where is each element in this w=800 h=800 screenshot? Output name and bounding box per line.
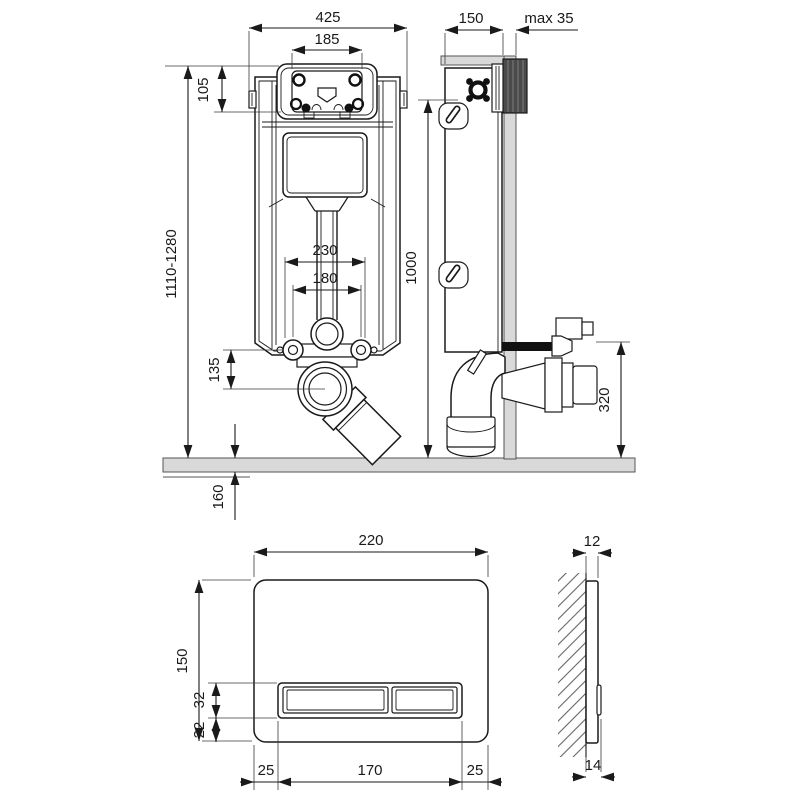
dim-bolt-spacing: 180 <box>312 270 337 287</box>
bolt-head <box>345 104 354 113</box>
drain-elbow <box>447 350 505 457</box>
dim-floor-depth: 160 <box>210 484 227 509</box>
dim-button-height: 32 <box>191 692 208 709</box>
technical-drawing-page: 425 185 105 1110-1280 230 180 135 160 15… <box>0 0 800 800</box>
plate-side-button-bump <box>597 685 601 715</box>
dim-plate-margin-right: 25 <box>467 762 484 779</box>
dim-outlet-drop: 135 <box>206 357 223 382</box>
frame-front-view <box>249 64 407 467</box>
dim-plate-height: 150 <box>174 648 191 673</box>
dim-plate-thickness: 12 <box>584 533 601 550</box>
flush-plate-side-view <box>558 573 601 757</box>
dim-button-span: 170 <box>357 762 382 779</box>
frame-side-view <box>439 56 597 459</box>
flush-button-small <box>392 687 457 713</box>
dim-plate-total-depth: 14 <box>585 757 602 774</box>
dim-opening-width: 185 <box>314 31 339 48</box>
mounting-tab-upper <box>439 103 468 129</box>
access-box <box>277 64 377 119</box>
dim-opening-height: 105 <box>195 77 212 102</box>
installation-drawing: 425 185 105 1110-1280 230 180 135 160 15… <box>0 0 800 800</box>
dim-height-range: 1110-1280 <box>163 229 180 299</box>
dim-frame-depth: 150 <box>458 10 483 27</box>
dim-outlet-height: 320 <box>596 387 613 412</box>
dim-fixing-height: 1000 <box>403 251 420 284</box>
floor-slab <box>163 458 635 477</box>
flush-plate-front-view <box>254 580 488 742</box>
dim-wall-allowance: max 35 <box>524 10 573 27</box>
wall-hatch <box>558 573 586 757</box>
dim-plate-width: 220 <box>358 532 383 549</box>
bolt-head <box>302 104 311 113</box>
hanger-hook-left <box>249 91 256 108</box>
plate-side-body <box>586 581 598 743</box>
mounting-tab-lower <box>439 262 468 288</box>
hanger-hook-right <box>400 91 407 108</box>
dim-frame-width: 425 <box>315 9 340 26</box>
dim-button-bottom: 22 <box>191 722 208 739</box>
wall-spacer-block <box>492 59 527 113</box>
dim-plate-margin-left: 25 <box>258 762 275 779</box>
dim-outer-spacing: 230 <box>312 242 337 259</box>
flush-button-large <box>283 687 388 713</box>
